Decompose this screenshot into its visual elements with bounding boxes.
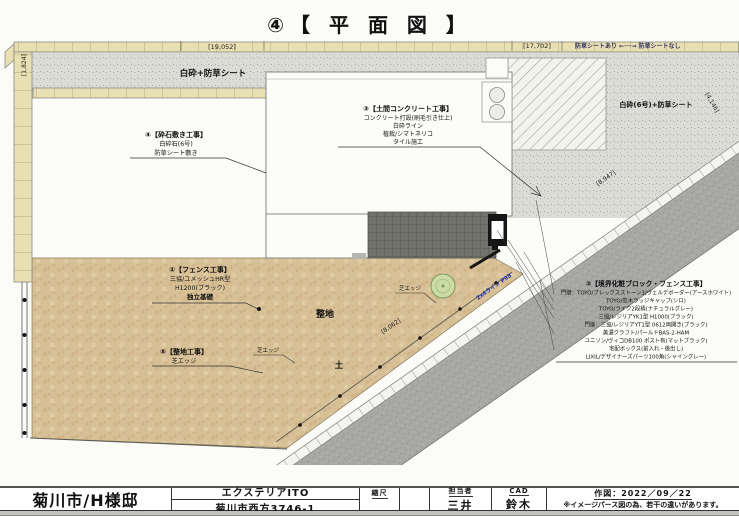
svg-text:②【境界化粧ブロック・フェンス工事】: ②【境界化粧ブロック・フェンス工事】 [585,279,706,288]
step-stone [352,253,366,259]
bottom-bar [0,511,739,516]
svg-text:ユニソン/ヴィコDB100 ポスト有(マットブラック): ユニソン/ヴィコDB100 ポスト有(マットブラック) [585,337,708,345]
drawing-sheet: ④【 平 面 図 】 [0,0,739,515]
block-wall-corner [5,44,14,68]
svg-text:門扉：三協/レジリアYT1型 0612両開き(ブラック): 門扉：三協/レジリアYT1型 0612両開き(ブラック) [584,321,707,329]
label-ground: 整地 [315,308,334,320]
block-wall-left [14,52,32,282]
dim-left-side: [1,824] [21,54,28,76]
concrete-hatch-area [508,58,606,150]
annotation-crushed-stone: ④【砕石敷き工事】 白砕石(6号) 防草シート敷き [130,130,266,173]
svg-text:防草シート敷き: 防草シート敷き [154,149,197,157]
page-title: ④【 平 面 図 】 [0,9,739,38]
company-cell: エクステリアITO 菊川市西方3746-1 [172,488,360,510]
svg-text:①【フェンス工事】: ①【フェンス工事】 [169,265,231,274]
company-name: エクステリアITO [172,484,359,500]
label-gravel-right: 白砕(6号)+防草シート [619,100,692,109]
svg-text:芝エッジ: 芝エッジ [172,357,197,365]
dim-top-left: [19,052] [208,43,236,51]
svg-text:TOYO/笠木ラッジキャップ(シロ): TOYO/笠木ラッジキャップ(シロ) [605,297,686,305]
site-plan-drawing: [19,052] [17,702] [1,824] [4,146] [8,947… [0,0,739,465]
tree-symbol [431,274,455,298]
svg-text:宅配ボックス(前入れ・後出し): 宅配ボックス(前入れ・後出し) [609,345,683,353]
svg-text:門壁：TOYO/ブレックスストーン3/ヴェルデボーダー(アー: 門壁：TOYO/ブレックスストーン3/ヴェルデボーダー(アースホワイト) [561,289,731,297]
svg-text:三協/ユメッシュHR型: 三協/ユメッシュHR型 [170,275,231,283]
svg-text:⑤【整地工事】: ⑤【整地工事】 [160,347,208,356]
svg-text:白砕石(6号): 白砕石(6号) [159,140,193,148]
svg-text:コンクリート打設(刷毛引き仕上): コンクリート打設(刷毛引き仕上) [364,114,453,122]
cad-label: CAD [509,487,528,496]
scale-cell: 縮尺 [360,488,400,510]
client-name: 菊川市/H様邸 [0,488,172,510]
svg-text:H1200(ブラック): H1200(ブラック) [175,284,225,292]
utility-unit [482,58,512,122]
label-lawn-edge-2: 芝エッジ [257,346,280,354]
svg-text:白砕ライン: 白砕ライン [393,122,423,130]
block-wall-inner [33,88,273,98]
label-gravel-top: 白砕+防草シート [180,68,247,79]
disclaimer-note: ※イメージパース図の為、若干の違いがあります。 [563,500,722,510]
tile-approach [368,212,496,258]
svg-text:美濃クラフト/パールドBAS-2-HAM: 美濃クラフト/パールドBAS-2-HAM [603,329,690,337]
svg-text:③【土間コンクリート工事】: ③【土間コンクリート工事】 [363,104,453,113]
svg-text:三協/レジリアYK1型 H1000(ブラック): 三協/レジリアYK1型 H1000(ブラック) [598,313,693,321]
cad-value: 鈴木 [506,496,532,512]
svg-text:TOYO/ライク2段積(ナチュラルグレー): TOYO/ライク2段積(ナチュラルグレー) [598,305,693,313]
svg-text:LIXIL/デザイナーズパーツ100角(シャイングレー): LIXIL/デザイナーズパーツ100角(シャイングレー) [586,353,706,361]
svg-text:独立基礎: 独立基礎 [187,292,214,301]
svg-text:④【砕石敷き工事】: ④【砕石敷き工事】 [145,130,207,139]
svg-text:植栽/シマトネリコ: 植栽/シマトネリコ [383,130,433,138]
scale-label: 縮尺 [372,488,388,499]
svg-text:タイル施工: タイル施工 [393,138,423,146]
cad-cell: CAD 鈴木 [492,488,547,510]
title-block: 菊川市/H様邸 エクステリアITO 菊川市西方3746-1 縮尺 担当者 三井 … [0,486,739,511]
label-lawn-edge-1: 芝エッジ [399,284,422,292]
label-weed-sheet-range: 防草シートあり ←──→ 防草シートなし [575,42,680,50]
manager-label: 担当者 [449,486,473,497]
date-note-cell: 作図：2022／09／22 ※イメージパース図の為、若干の違いがあります。 [547,488,739,510]
label-soil: 土 [335,360,344,371]
spacer-cell [400,488,430,510]
drawing-date: 作図：2022／09／22 [594,488,692,500]
manager-cell: 担当者 三井 [430,488,492,510]
dim-top-right: [17,702] [523,42,551,50]
